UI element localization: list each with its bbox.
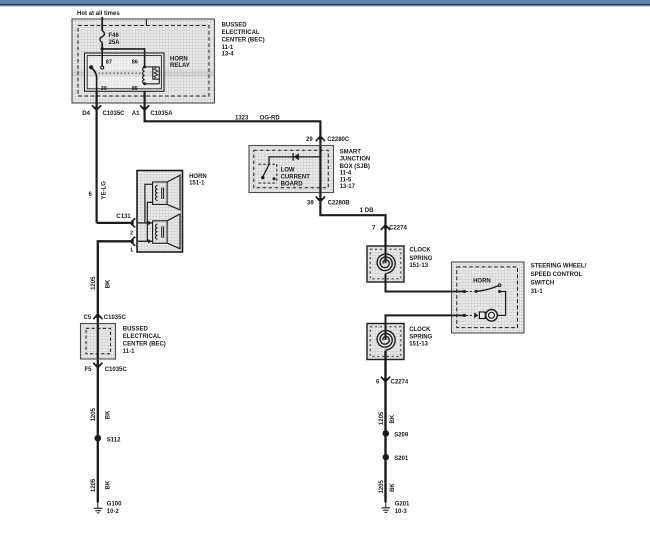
svg-text:13-4: 13-4	[222, 51, 235, 57]
svg-text:C1035C: C1035C	[105, 367, 128, 373]
svg-text:87: 87	[106, 60, 112, 66]
svg-text:C1035C: C1035C	[103, 111, 126, 117]
svg-text:6: 6	[376, 379, 380, 385]
svg-text:29: 29	[306, 137, 313, 143]
svg-text:39: 39	[307, 200, 314, 206]
svg-text:SPRING: SPRING	[409, 335, 432, 341]
svg-text:85: 85	[132, 86, 138, 92]
svg-text:31-1: 31-1	[531, 289, 544, 295]
svg-text:1 DB: 1 DB	[360, 208, 374, 214]
svg-text:C1035A: C1035A	[150, 111, 173, 117]
svg-text:7: 7	[372, 226, 376, 232]
svg-text:11-5: 11-5	[340, 177, 352, 183]
svg-text:F5: F5	[85, 367, 93, 373]
svg-text:1: 1	[130, 247, 133, 253]
svg-text:JUNCTION: JUNCTION	[340, 157, 371, 163]
svg-text:S201: S201	[394, 456, 409, 462]
svg-text:SPEED CONTROL: SPEED CONTROL	[531, 272, 583, 278]
svg-text:1205: 1205	[379, 479, 385, 493]
svg-text:11-1: 11-1	[222, 45, 234, 51]
svg-text:151-13: 151-13	[409, 342, 428, 348]
svg-text:BK: BK	[105, 480, 111, 489]
svg-text:ELECTRICAL: ELECTRICAL	[123, 334, 161, 340]
svg-text:BUSSED: BUSSED	[123, 327, 149, 333]
svg-text:BK: BK	[390, 483, 396, 492]
svg-text:C2274: C2274	[389, 226, 407, 232]
svg-text:A1: A1	[132, 111, 140, 117]
svg-text:13-17: 13-17	[340, 184, 356, 190]
svg-text:BK: BK	[105, 279, 111, 288]
svg-text:C5: C5	[84, 315, 92, 321]
svg-text:CLOCK: CLOCK	[409, 327, 431, 333]
svg-text:11-4: 11-4	[340, 171, 352, 177]
svg-text:CENTER (BEC): CENTER (BEC)	[123, 342, 166, 348]
svg-text:C2280C: C2280C	[327, 137, 350, 143]
svg-text:ELECTRICAL: ELECTRICAL	[222, 30, 260, 36]
svg-text:BK: BK	[105, 410, 111, 419]
svg-text:BK: BK	[390, 414, 396, 423]
svg-text:11-1: 11-1	[123, 349, 135, 355]
svg-text:10-3: 10-3	[395, 509, 408, 515]
svg-text:2: 2	[130, 231, 133, 237]
svg-text:BUSSED: BUSSED	[222, 22, 248, 28]
svg-text:HORN: HORN	[473, 278, 491, 284]
svg-text:151-1: 151-1	[189, 180, 205, 186]
svg-text:HORN: HORN	[189, 174, 207, 180]
svg-text:RELAY: RELAY	[170, 63, 190, 69]
svg-text:C2280B: C2280B	[328, 200, 351, 206]
svg-text:LOW: LOW	[281, 167, 295, 173]
svg-text:SPRING: SPRING	[409, 256, 432, 262]
svg-text:86: 86	[132, 60, 138, 66]
svg-text:Hot at all times: Hot at all times	[77, 11, 120, 17]
svg-text:G100: G100	[107, 502, 122, 508]
svg-text:S209: S209	[394, 432, 409, 438]
svg-text:G201: G201	[395, 502, 410, 508]
svg-text:CENTER (BEC): CENTER (BEC)	[222, 38, 265, 44]
svg-text:CURRENT: CURRENT	[281, 175, 311, 181]
svg-text:BOARD: BOARD	[281, 182, 304, 188]
svg-text:1323: 1323	[235, 116, 249, 122]
svg-text:6: 6	[89, 192, 93, 198]
svg-text:BOX (SJB): BOX (SJB)	[340, 164, 370, 170]
svg-text:C131: C131	[116, 214, 131, 220]
svg-text:D4: D4	[82, 111, 90, 117]
svg-text:1205: 1205	[91, 478, 97, 492]
svg-text:10-2: 10-2	[107, 509, 120, 515]
svg-text:SWITCH: SWITCH	[531, 281, 555, 287]
svg-text:30: 30	[101, 86, 107, 92]
svg-text:STEERING WHEEL/: STEERING WHEEL/	[531, 263, 587, 269]
svg-text:1205: 1205	[379, 411, 385, 425]
svg-text:C2274: C2274	[391, 379, 409, 385]
svg-text:F46: F46	[109, 33, 120, 39]
svg-text:C1035C: C1035C	[104, 315, 127, 321]
svg-text:YE-LG: YE-LG	[102, 181, 108, 200]
svg-text:OG-RD: OG-RD	[260, 116, 281, 122]
svg-text:S112: S112	[107, 438, 121, 444]
svg-text:CLOCK: CLOCK	[409, 247, 431, 253]
svg-text:1205: 1205	[91, 276, 97, 290]
svg-text:1205: 1205	[91, 407, 97, 421]
svg-text:25A: 25A	[109, 40, 121, 46]
svg-text:HORN: HORN	[170, 57, 188, 63]
svg-text:SMART: SMART	[340, 150, 362, 156]
svg-text:151-13: 151-13	[409, 263, 428, 269]
